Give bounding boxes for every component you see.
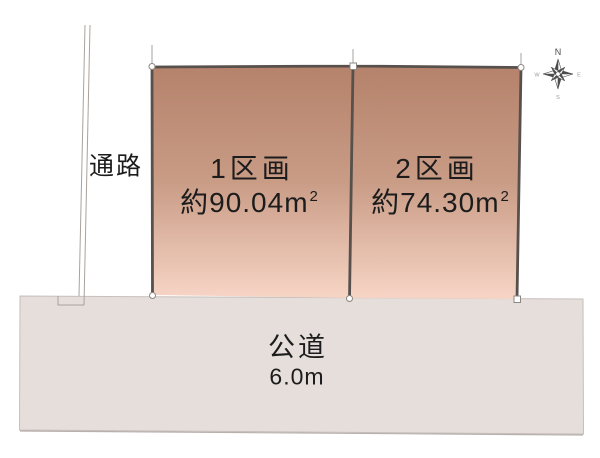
plot-1-name: 1区画 [210, 155, 294, 183]
site-plan: N E S W 通路 1区画 約90.04m2 2区画 約74.30m2 公道 … [0, 0, 600, 458]
vertex-marker [149, 64, 155, 70]
plot-1-area: 約90.04m2 [180, 189, 318, 217]
passage-label: 通路 [89, 155, 143, 180]
vertex-marker [347, 296, 353, 302]
vertex-marker [514, 296, 521, 303]
compass-east-label: E [577, 73, 581, 79]
compass-rose-icon: N E S W [534, 47, 581, 101]
plot-2-area-value: 約74.30m [371, 187, 499, 218]
plot-1-area-superscript: 2 [310, 188, 318, 205]
plot-2-area: 約74.30m2 [371, 189, 509, 217]
passage-left-line [79, 25, 85, 296]
vertex-marker [150, 293, 156, 299]
plot-2-area-superscript: 2 [501, 188, 509, 205]
plot-2-name: 2区画 [395, 155, 479, 183]
vertex-marker [518, 65, 524, 71]
compass-south-label: S [556, 95, 560, 101]
corner-tick-lines [152, 45, 521, 65]
compass-north-label: N [555, 47, 562, 57]
vertex-marker [350, 63, 357, 70]
road-name-label: 公道 [268, 335, 328, 362]
plot-1-area-value: 約90.04m [180, 187, 308, 218]
compass-center [556, 72, 560, 76]
compass-west-label: W [534, 73, 540, 79]
road-width-label: 6.0m [269, 366, 324, 389]
